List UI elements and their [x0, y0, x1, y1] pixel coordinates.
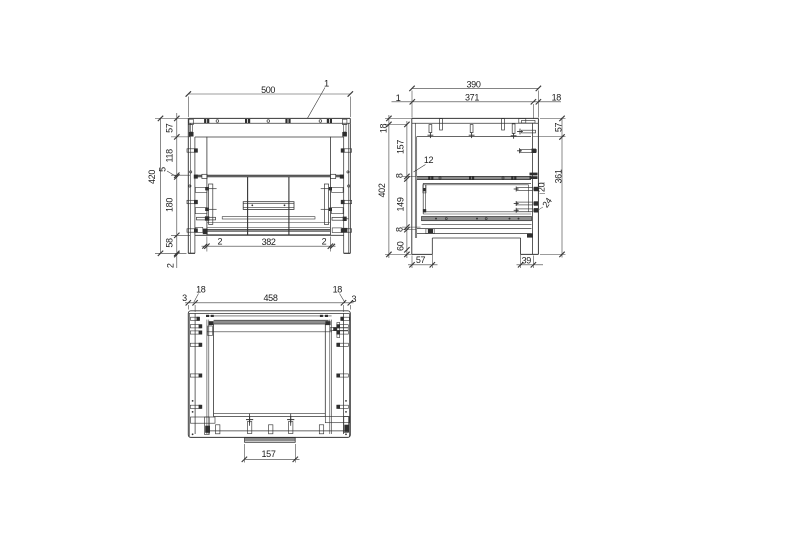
svg-text:57: 57	[553, 123, 563, 133]
svg-text:58: 58	[165, 238, 175, 248]
svg-text:2: 2	[217, 237, 222, 247]
svg-text:20: 20	[537, 183, 547, 193]
svg-text:371: 371	[465, 93, 479, 103]
svg-text:3: 3	[182, 293, 187, 303]
svg-text:458: 458	[264, 293, 278, 303]
svg-text:361: 361	[553, 169, 563, 183]
svg-text:12: 12	[424, 155, 434, 165]
svg-text:118: 118	[165, 149, 175, 163]
svg-text:390: 390	[467, 79, 481, 89]
svg-text:3: 3	[351, 294, 356, 304]
svg-text:1: 1	[324, 78, 329, 89]
svg-text:8: 8	[395, 173, 405, 178]
svg-text:420: 420	[147, 170, 157, 184]
svg-text:180: 180	[165, 198, 175, 212]
svg-text:39: 39	[522, 255, 532, 265]
svg-text:5: 5	[158, 167, 168, 172]
svg-text:382: 382	[262, 237, 276, 247]
svg-text:60: 60	[396, 241, 406, 251]
svg-text:157: 157	[396, 140, 406, 154]
svg-text:57: 57	[416, 255, 426, 265]
svg-text:2: 2	[166, 263, 176, 268]
svg-text:149: 149	[396, 197, 406, 211]
svg-text:157: 157	[262, 449, 276, 459]
svg-text:18: 18	[552, 93, 562, 103]
svg-text:18: 18	[196, 285, 206, 295]
svg-text:18: 18	[379, 124, 389, 134]
svg-text:18: 18	[333, 285, 343, 295]
svg-text:500: 500	[261, 85, 275, 95]
svg-text:8: 8	[395, 227, 405, 232]
svg-text:1: 1	[396, 92, 401, 103]
svg-text:402: 402	[377, 183, 387, 197]
svg-text:57: 57	[165, 123, 175, 133]
svg-text:2: 2	[322, 237, 327, 247]
